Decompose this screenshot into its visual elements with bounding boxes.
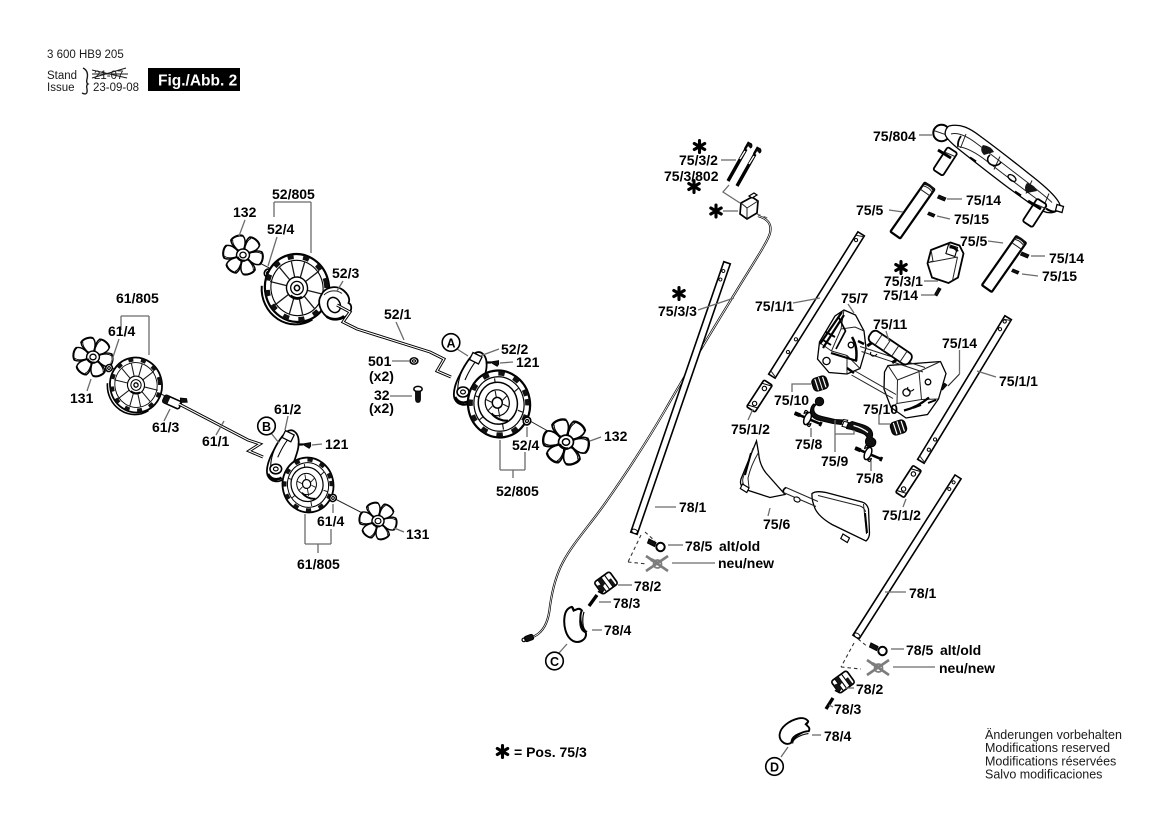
svg-text:75/10: 75/10: [774, 392, 809, 408]
svg-text:neu/new: neu/new: [939, 660, 995, 676]
svg-text:52/1: 52/1: [384, 306, 411, 322]
svg-text:78/1: 78/1: [909, 585, 936, 601]
svg-text:D: D: [770, 761, 779, 775]
svg-text:75/8: 75/8: [856, 470, 883, 486]
svg-text:neu/new: neu/new: [718, 555, 774, 571]
svg-text:132: 132: [233, 204, 257, 220]
svg-text:Modifications réservées: Modifications réservées: [985, 755, 1116, 769]
svg-text:78/5: 78/5: [906, 642, 933, 658]
svg-text:75/1/1: 75/1/1: [755, 298, 794, 314]
svg-text:75/6: 75/6: [763, 516, 790, 532]
svg-text:75/5: 75/5: [960, 233, 987, 249]
svg-text:61/805: 61/805: [297, 556, 340, 572]
svg-text:61/805: 61/805: [116, 290, 159, 306]
svg-text:75/3/802: 75/3/802: [664, 168, 719, 184]
svg-text:52/3: 52/3: [332, 265, 359, 281]
svg-text:23-09-08: 23-09-08: [93, 82, 139, 94]
svg-text:52/805: 52/805: [496, 483, 539, 499]
svg-text:Salvo modificaciones: Salvo modificaciones: [985, 768, 1102, 782]
svg-text:75/11: 75/11: [873, 316, 907, 332]
svg-text:C: C: [550, 655, 559, 669]
svg-text:78/1: 78/1: [679, 499, 706, 515]
svg-text:78/5: 78/5: [685, 538, 712, 554]
svg-text:78/4: 78/4: [604, 622, 631, 638]
svg-text:Issue: Issue: [47, 82, 75, 94]
svg-text:Stand: Stand: [47, 70, 77, 82]
svg-text:61/1: 61/1: [202, 433, 229, 449]
svg-text:(x2): (x2): [369, 368, 394, 384]
svg-text:Fig./Abb. 2: Fig./Abb. 2: [158, 73, 237, 90]
svg-text:121: 121: [516, 354, 540, 370]
svg-text:75/14: 75/14: [1049, 250, 1084, 266]
svg-text:75/3/3: 75/3/3: [658, 303, 697, 319]
svg-text:75/1/1: 75/1/1: [999, 373, 1038, 389]
svg-text:132: 132: [604, 428, 628, 444]
svg-text:= Pos. 75/3: = Pos. 75/3: [514, 744, 587, 760]
svg-text:78/3: 78/3: [834, 701, 861, 717]
svg-text:61/4: 61/4: [317, 513, 344, 529]
svg-text:52/4: 52/4: [267, 221, 294, 237]
svg-text:Modifications reserved: Modifications reserved: [985, 741, 1110, 755]
svg-text:78/2: 78/2: [634, 578, 661, 594]
svg-text:75/804: 75/804: [873, 128, 916, 144]
svg-text:75/15: 75/15: [1042, 268, 1077, 284]
svg-text:A: A: [446, 337, 455, 351]
svg-text:78/2: 78/2: [856, 681, 883, 697]
svg-text:alt/old: alt/old: [940, 642, 981, 658]
svg-text:61/3: 61/3: [152, 419, 179, 435]
svg-text:61/2: 61/2: [274, 401, 301, 417]
svg-text:75/14: 75/14: [883, 287, 918, 303]
svg-text:75/14: 75/14: [942, 335, 977, 351]
svg-text:75/8: 75/8: [795, 436, 822, 452]
svg-text:75/10: 75/10: [863, 401, 898, 417]
svg-text:75/7: 75/7: [841, 290, 868, 306]
svg-text:501: 501: [368, 353, 392, 369]
svg-text:75/5: 75/5: [856, 202, 883, 218]
svg-text:75/1/2: 75/1/2: [731, 421, 770, 437]
svg-text:75/15: 75/15: [954, 211, 989, 227]
svg-text:121: 121: [325, 436, 349, 452]
svg-text:Änderungen vorbehalten: Änderungen vorbehalten: [985, 728, 1122, 742]
svg-text:75/9: 75/9: [821, 453, 848, 469]
svg-text:75/1/2: 75/1/2: [882, 507, 921, 523]
svg-text:75/14: 75/14: [966, 192, 1001, 208]
svg-text:52/4: 52/4: [512, 437, 539, 453]
svg-text:61/4: 61/4: [108, 323, 135, 339]
svg-text:alt/old: alt/old: [719, 538, 760, 554]
svg-text:78/4: 78/4: [824, 728, 851, 744]
svg-text:B: B: [262, 420, 271, 434]
svg-text:75/3/2: 75/3/2: [679, 152, 718, 168]
svg-text:3 600 HB9 205: 3 600 HB9 205: [47, 49, 124, 61]
svg-text:78/3: 78/3: [613, 595, 640, 611]
svg-text:52/805: 52/805: [272, 186, 315, 202]
svg-text:131: 131: [406, 526, 430, 542]
svg-text:(x2): (x2): [369, 400, 394, 416]
svg-text:131: 131: [70, 390, 94, 406]
